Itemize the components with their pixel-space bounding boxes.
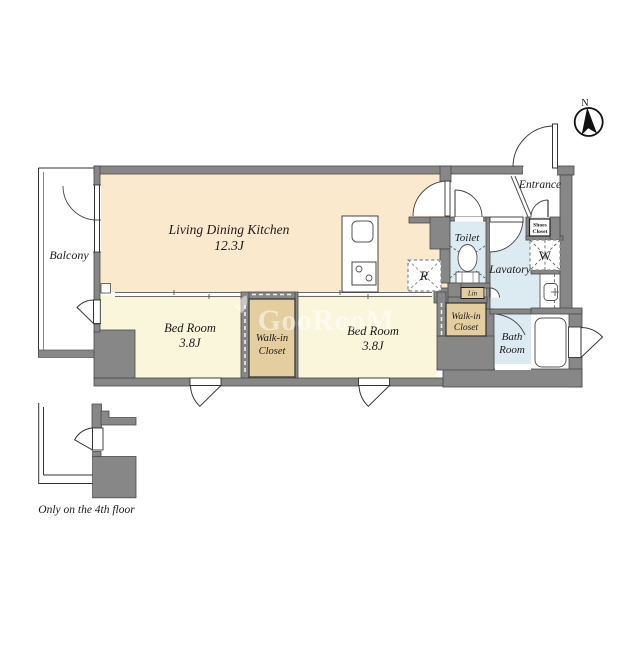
svg-text:Lin: Lin — [467, 290, 478, 298]
svg-text:Balcony: Balcony — [49, 248, 89, 262]
svg-text:Walk-in: Walk-in — [451, 312, 480, 322]
svg-text:Bed Room: Bed Room — [164, 321, 216, 335]
svg-text:12.3J: 12.3J — [214, 238, 245, 253]
svg-text:Only on the 4th floor: Only on the 4th floor — [38, 504, 135, 516]
svg-text:GooRooM: GooRooM — [258, 304, 395, 337]
svg-text:W: W — [539, 248, 552, 263]
svg-text:3.8J: 3.8J — [361, 339, 385, 353]
svg-text:Closet: Closet — [454, 323, 479, 333]
svg-text:Closet: Closet — [533, 229, 548, 235]
svg-text:Shoes: Shoes — [533, 223, 548, 229]
svg-text:Living Dining Kitchen: Living Dining Kitchen — [168, 222, 290, 237]
svg-text:3.8J: 3.8J — [178, 336, 202, 350]
svg-text:Closet: Closet — [259, 346, 287, 357]
svg-text:Lavatory: Lavatory — [488, 264, 531, 276]
svg-text:N: N — [581, 98, 588, 109]
svg-text:R: R — [419, 268, 428, 283]
svg-text:Bath: Bath — [502, 331, 523, 343]
svg-text:Toilet: Toilet — [455, 232, 481, 244]
svg-text:Room: Room — [498, 344, 525, 356]
svg-text:Entrance: Entrance — [518, 179, 561, 191]
